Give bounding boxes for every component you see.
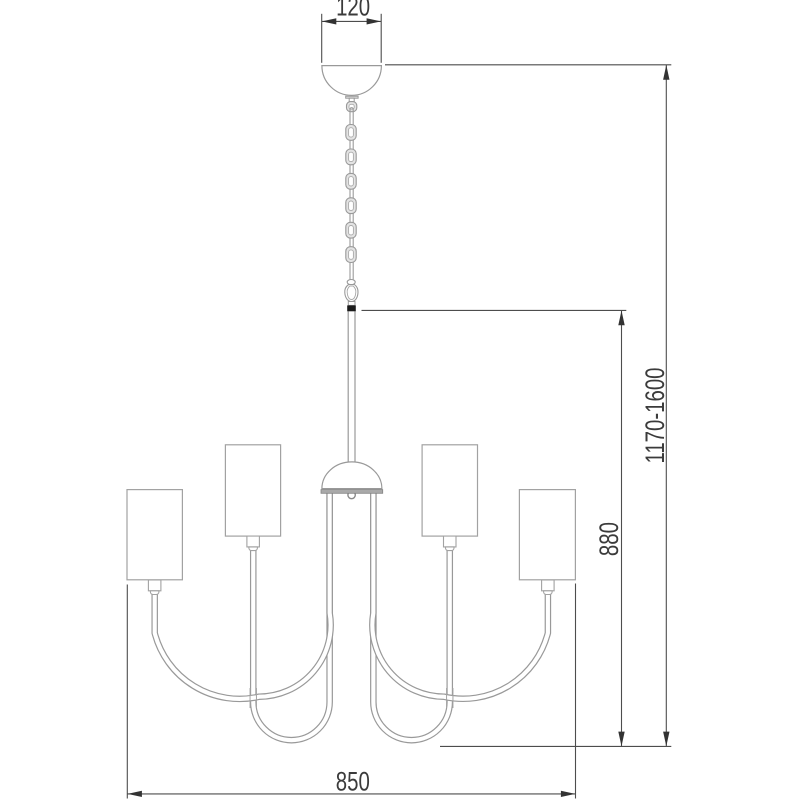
svg-text:1170-1600: 1170-1600 <box>640 367 671 463</box>
svg-text:850: 850 <box>336 767 370 798</box>
svg-text:880: 880 <box>594 522 625 556</box>
svg-text:120: 120 <box>336 0 370 22</box>
